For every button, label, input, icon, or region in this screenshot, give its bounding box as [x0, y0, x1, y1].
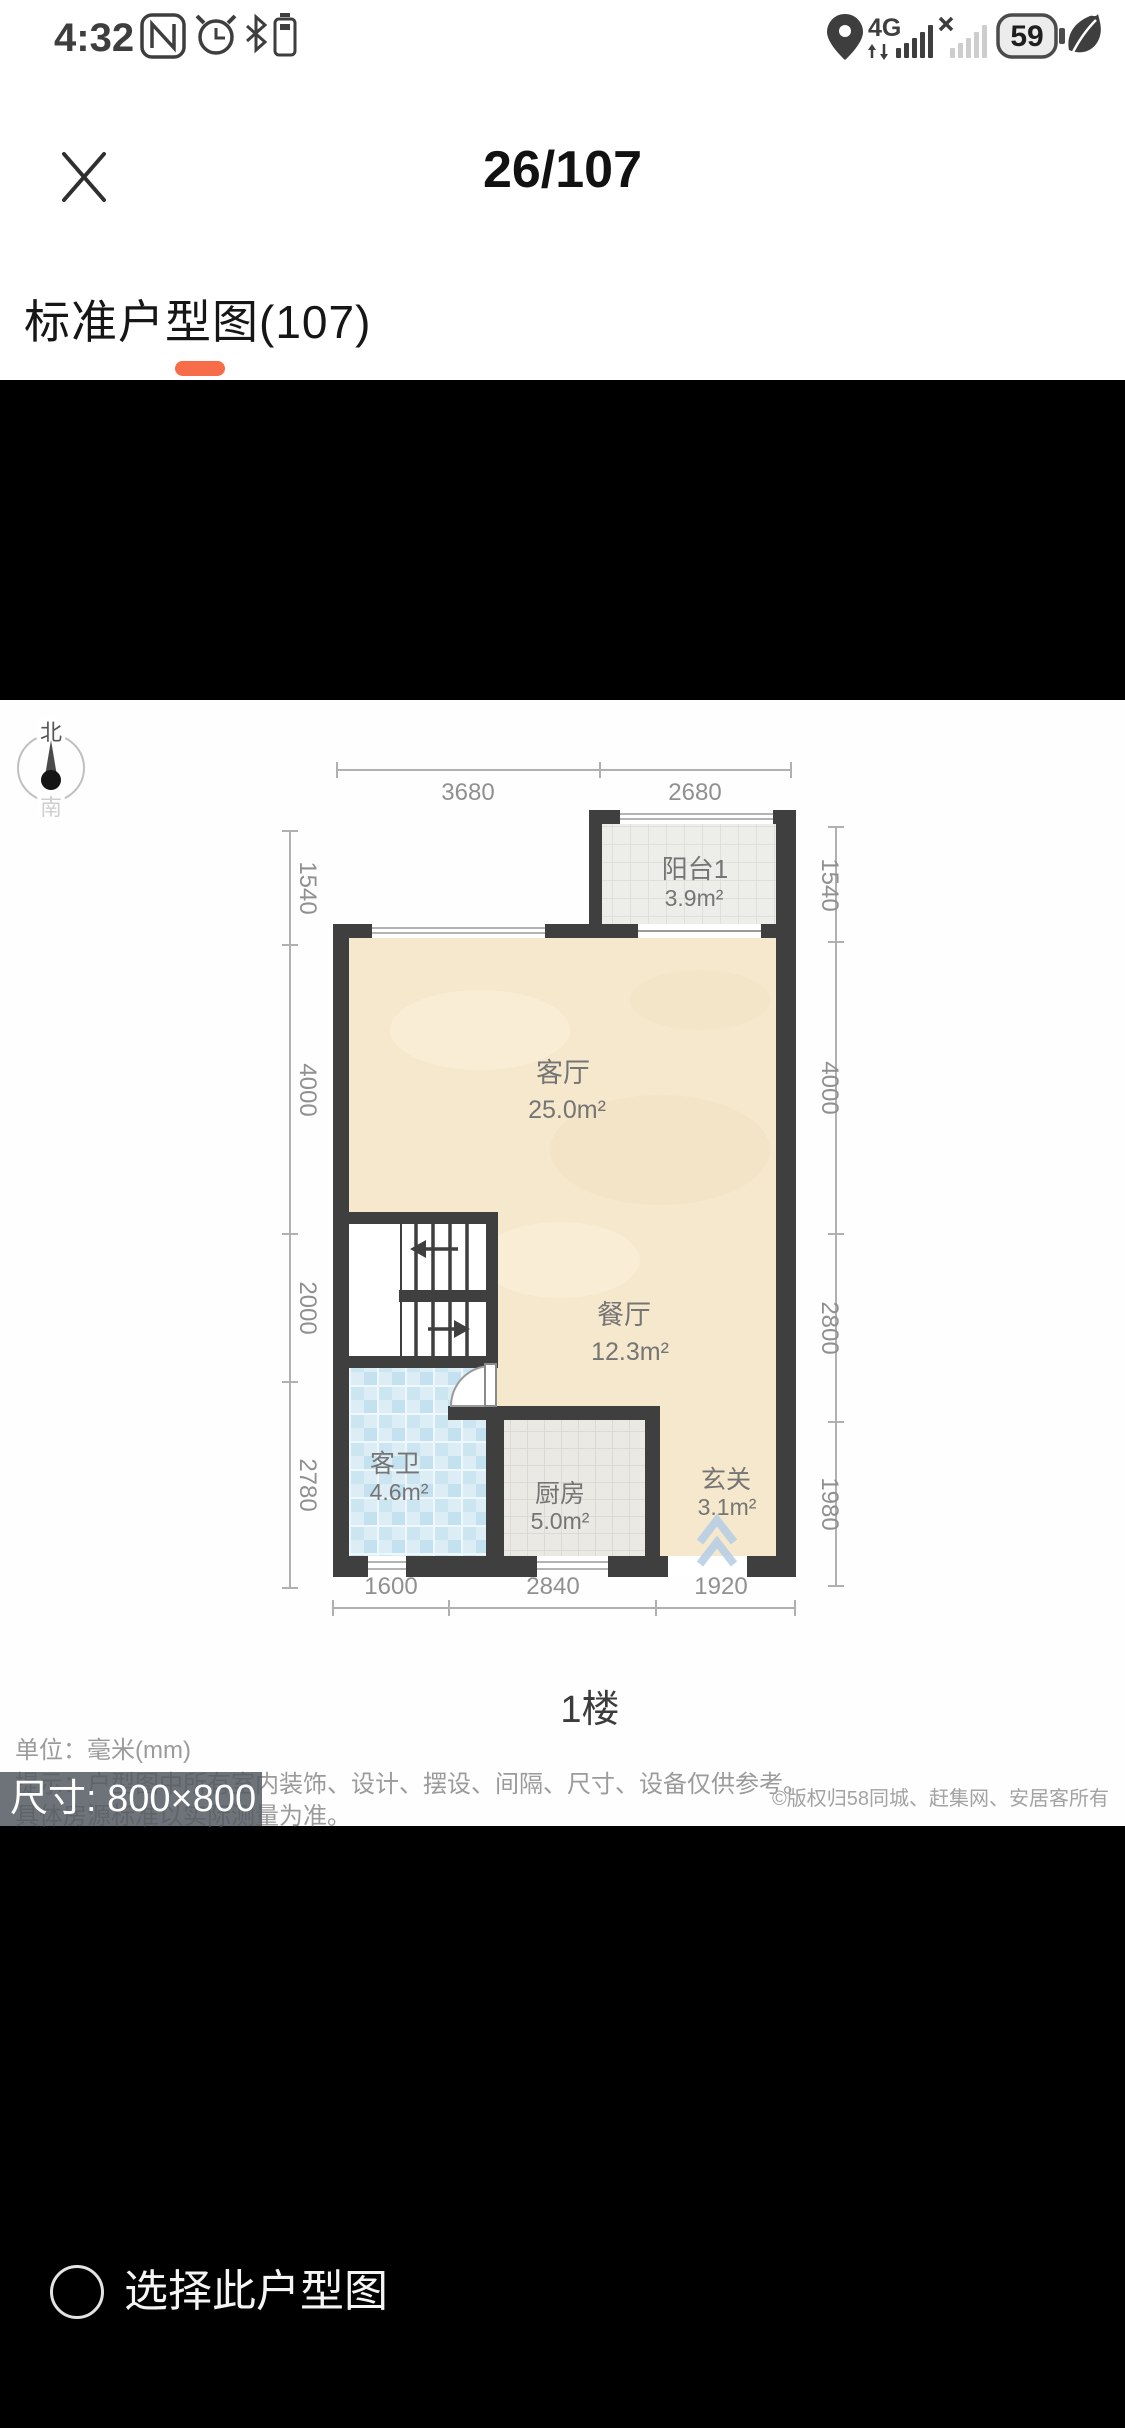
network-type-text: 4G [868, 14, 901, 42]
room-dining-area: 12.3m² [591, 1338, 669, 1366]
tab-active-underline [175, 361, 225, 376]
header-area: 4:32 4G [0, 0, 1125, 380]
svg-text:2780: 2780 [294, 1458, 321, 1511]
room-living-area: 25.0m² [528, 1096, 606, 1124]
room-entry-name: 玄关 [701, 1466, 751, 1494]
battery-percent-text: 59 [1010, 20, 1043, 53]
svg-text:2000: 2000 [294, 1281, 321, 1334]
floorplan-image[interactable]: 北 南 [0, 700, 1125, 1826]
room-bath-name: 客卫 [370, 1450, 420, 1478]
svg-text:南: 南 [40, 795, 62, 820]
tab-floorplan[interactable]: 标准户型图(107) [24, 286, 371, 352]
room-kitchen-area: 5.0m² [531, 1508, 590, 1534]
room-balcony-area: 3.9m² [665, 885, 724, 911]
select-radio[interactable] [50, 2265, 104, 2319]
device-battery-icon [275, 13, 295, 55]
image-size-badge: 尺寸: 800×800 [0, 1772, 262, 1826]
room-dining-name: 餐厅 [597, 1300, 651, 1330]
compass-icon: 北 南 [18, 720, 84, 820]
copyright-text: ©版权归58同城、赶集网、安居客所有 [772, 1782, 1109, 1811]
room-balcony-name: 阳台1 [662, 854, 728, 884]
floor-number-label: 1楼 [560, 1689, 619, 1731]
unit-note: 单位：毫米(mm) [15, 1730, 191, 1765]
svg-text:1920: 1920 [694, 1573, 747, 1600]
select-floorplan-label[interactable]: 选择此户型图 [124, 2266, 388, 2318]
no-signal-icon [940, 18, 987, 58]
svg-text:1540: 1540 [294, 861, 321, 914]
bluetooth-icon [247, 17, 265, 50]
svg-text:1980: 1980 [816, 1477, 843, 1530]
svg-text:4000: 4000 [816, 1061, 843, 1114]
svg-text:2800: 2800 [816, 1301, 843, 1354]
svg-text:2680: 2680 [668, 779, 721, 806]
room-entry-area: 3.1m² [698, 1494, 757, 1520]
svg-text:1600: 1600 [364, 1573, 417, 1600]
location-icon [827, 14, 863, 60]
signal-bars-icon [896, 25, 933, 58]
status-bar-icons: 4G 59 [0, 0, 1125, 70]
floorplan-drawing: 北 南 [0, 700, 1125, 1826]
data-arrows-icon [868, 44, 888, 60]
svg-text:1540: 1540 [816, 858, 843, 911]
battery-icon: 59 [998, 15, 1065, 57]
svg-text:4000: 4000 [294, 1063, 321, 1116]
page-counter: 26/107 [0, 140, 1125, 200]
svg-text:2840: 2840 [526, 1573, 579, 1600]
room-kitchen-name: 厨房 [535, 1480, 585, 1508]
room-bath-area: 4.6m² [370, 1479, 429, 1505]
svg-text:3680: 3680 [441, 779, 494, 806]
alarm-icon [197, 16, 235, 53]
screen: { "status_bar": { "time": "4:32", "netwo… [0, 0, 1125, 2428]
room-living-name: 客厅 [536, 1058, 590, 1088]
leaf-icon [1068, 14, 1100, 54]
nfc-icon [142, 15, 184, 57]
